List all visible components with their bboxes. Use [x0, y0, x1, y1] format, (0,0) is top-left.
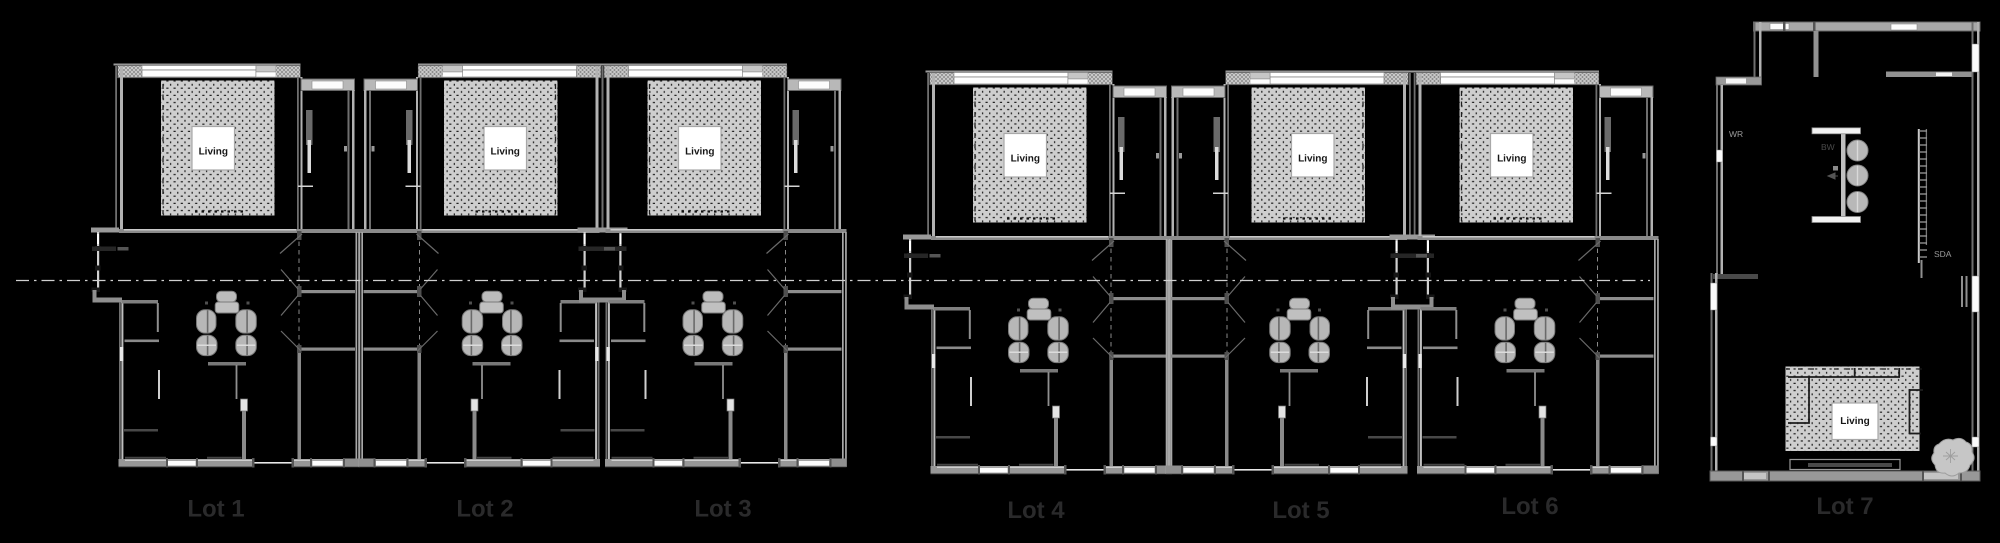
svg-text:Lot 6: Lot 6 [1501, 493, 1558, 520]
svg-text:Living: Living [490, 147, 519, 158]
svg-text:Living: Living [1497, 154, 1526, 165]
svg-text:WR: WR [1729, 129, 1743, 139]
svg-text:BW: BW [1821, 142, 1835, 152]
svg-text:Lot 7: Lot 7 [1816, 493, 1873, 520]
svg-text:Living: Living [1840, 416, 1869, 427]
svg-text:Lot 2: Lot 2 [456, 496, 513, 523]
svg-text:Living: Living [1298, 154, 1327, 165]
svg-text:Lot 1: Lot 1 [187, 496, 244, 523]
svg-text:SDA: SDA [1934, 249, 1952, 259]
svg-text:Living: Living [199, 147, 228, 158]
svg-text:Lot 4: Lot 4 [1007, 497, 1065, 524]
svg-text:Lot 5: Lot 5 [1272, 497, 1329, 524]
svg-text:Living: Living [1011, 154, 1040, 165]
svg-text:Living: Living [685, 147, 714, 158]
svg-text:Lot 3: Lot 3 [694, 496, 751, 523]
